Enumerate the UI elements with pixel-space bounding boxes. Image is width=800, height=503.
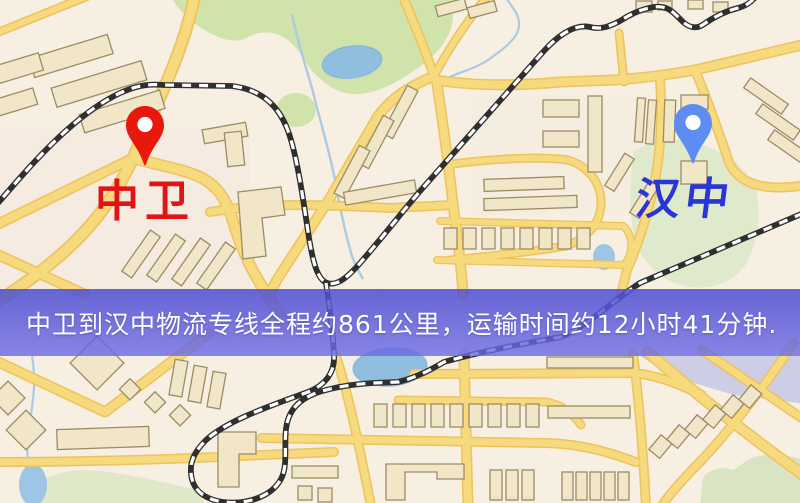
- map-canvas[interactable]: [0, 0, 800, 503]
- blue-map-pin-icon: [673, 101, 713, 167]
- red-map-pin-icon: [125, 103, 165, 169]
- route-info-text: 中卫到汉中物流专线全程约861公里，运输时间约12小时41分钟.: [26, 305, 777, 341]
- route-info-banner: 中卫到汉中物流专线全程约861公里，运输时间约12小时41分钟.: [0, 289, 800, 356]
- destination-marker-label: 汉中: [633, 178, 736, 222]
- origin-marker-label: 中卫: [95, 180, 195, 224]
- origin-marker[interactable]: [125, 103, 165, 169]
- destination-marker[interactable]: [673, 101, 713, 167]
